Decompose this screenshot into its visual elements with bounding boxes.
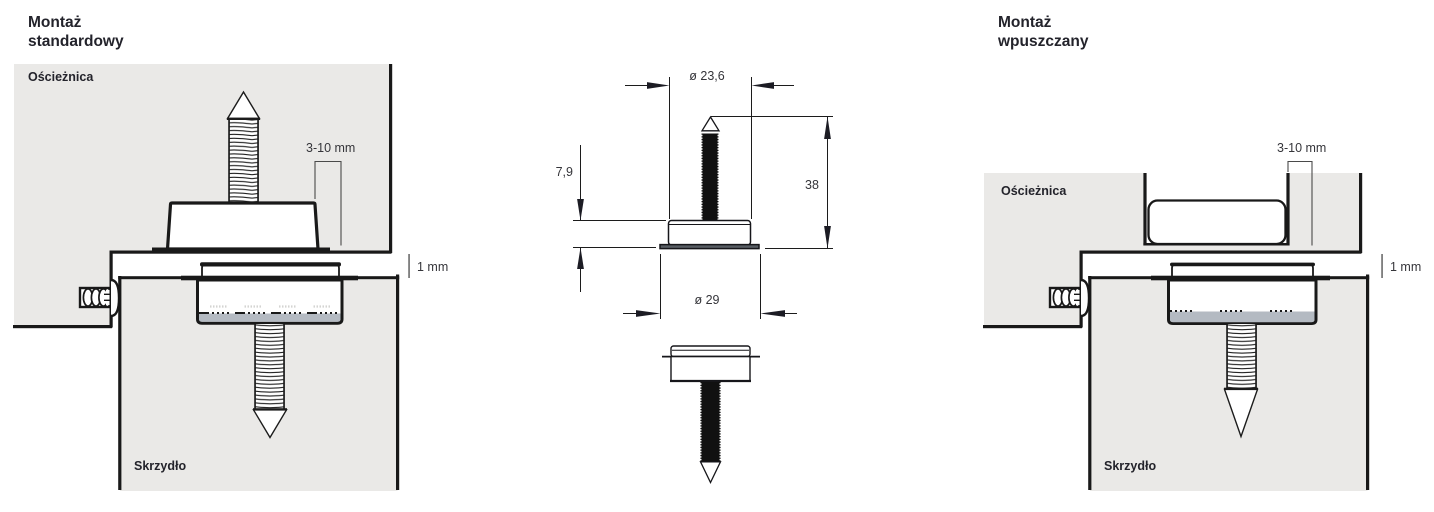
svg-text:3-10 mm: 3-10 mm (306, 141, 355, 155)
svg-text:1 mm: 1 mm (1390, 260, 1421, 274)
svg-text:ø 23,6: ø 23,6 (689, 69, 724, 83)
svg-text:38: 38 (805, 178, 819, 192)
svg-text:3-10 mm: 3-10 mm (1277, 141, 1326, 155)
svg-text:Ościeżnica: Ościeżnica (28, 70, 94, 84)
svg-text:ø 29: ø 29 (694, 293, 719, 307)
svg-text:standardowy: standardowy (28, 33, 124, 50)
svg-text:wpuszczany: wpuszczany (997, 33, 1089, 50)
svg-text:Montaż: Montaż (28, 14, 82, 31)
svg-text:Skrzydło: Skrzydło (134, 459, 186, 473)
svg-text:7,9: 7,9 (556, 165, 573, 179)
svg-text:Skrzydło: Skrzydło (1104, 459, 1156, 473)
svg-text:Montaż: Montaż (998, 14, 1052, 31)
svg-text:Ościeżnica: Ościeżnica (1001, 184, 1067, 198)
svg-text:1 mm: 1 mm (417, 260, 448, 274)
